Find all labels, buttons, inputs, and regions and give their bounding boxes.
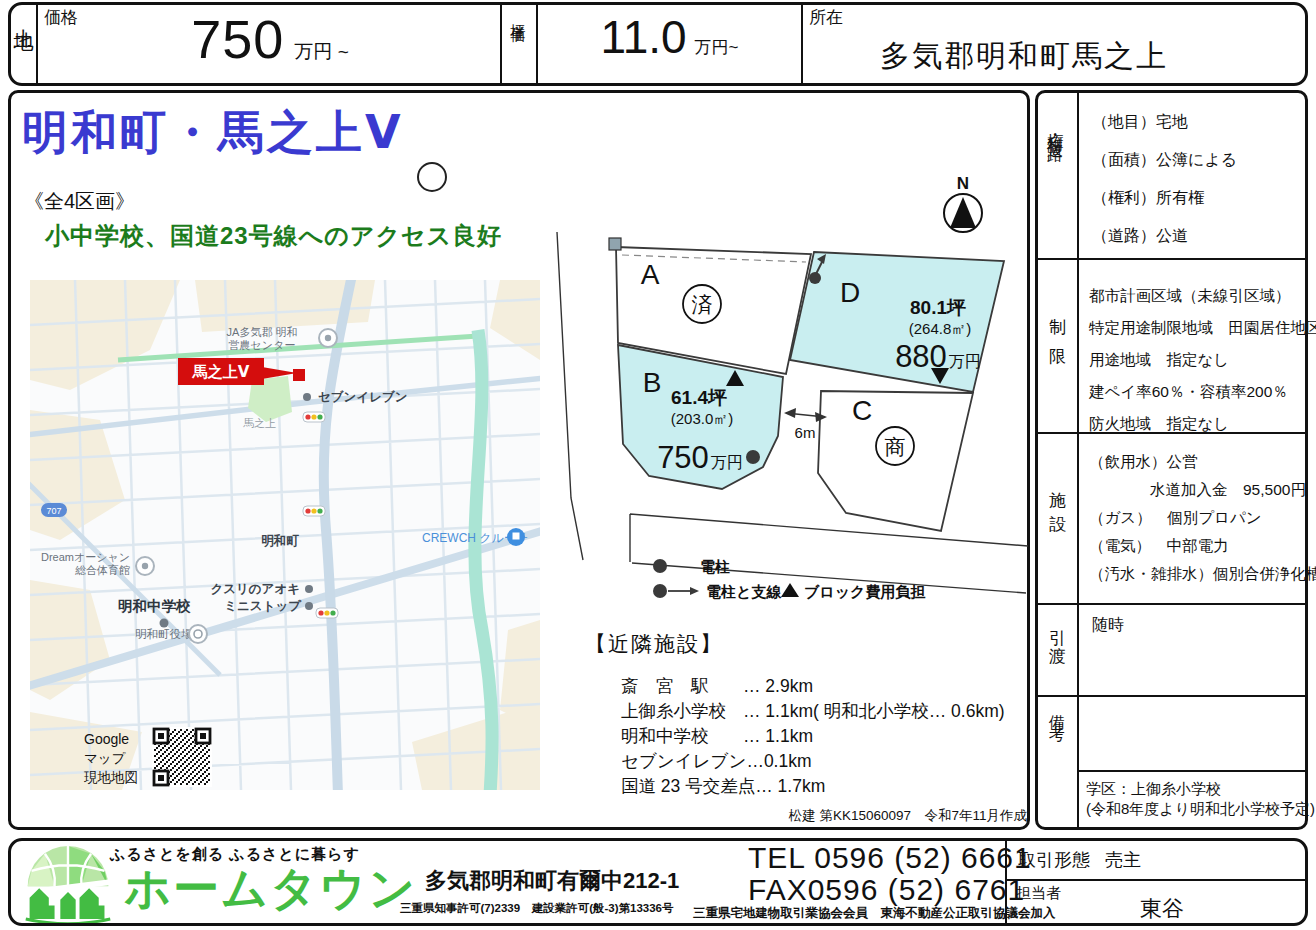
map-label-junior-high: 明和中学校 xyxy=(118,598,191,614)
north-compass: N xyxy=(944,174,982,232)
facility-row: 国道 23 号交差点… 1.7km xyxy=(621,774,1027,799)
footer-divider-v xyxy=(1005,841,1007,923)
map-label-seven-eleven: セブンイレブン xyxy=(318,390,408,404)
lot-C-status-text: 商 xyxy=(885,435,906,458)
map-label-ja-2: 営農センター xyxy=(229,339,296,351)
facility-name: 国道 23 号交差点 xyxy=(621,774,755,799)
lot-C-letter: C xyxy=(852,395,872,426)
tsubo-unit: 万円~ xyxy=(695,36,739,59)
handover-line: 随時 xyxy=(1092,615,1124,636)
google-note-line2: マップ xyxy=(84,749,138,768)
company-address: 多気郡明和町有爾中212-1 xyxy=(425,866,679,896)
restriction-line: 特定用途制限地域 田園居住地区 xyxy=(1089,318,1316,339)
lot-B-letter: B xyxy=(643,367,662,398)
lot-count-subtitle: 《全4区画》 xyxy=(24,188,135,215)
lot-A-status-text: 済 xyxy=(692,293,713,316)
deal-type-label: 取引形態 xyxy=(1018,848,1090,872)
price-value-row: 750 万円 ~ xyxy=(40,8,500,80)
school-note-line1: 学区：上御糸小学校 xyxy=(1086,780,1221,799)
header-divider-2 xyxy=(500,5,502,83)
traffic-signal-1 xyxy=(303,412,325,422)
traffic-signal-2 xyxy=(303,506,325,516)
utility-line: （飲用水）公営 xyxy=(1089,452,1198,473)
map-label-dream-1: Dreamオーシャン xyxy=(41,551,130,563)
plot-diagram: 6m N A B C D 済 商 61.4坪 (203.0㎡) 750万円 80… xyxy=(545,150,1030,625)
footer-divider-h xyxy=(1007,879,1305,881)
plot-bottom-road xyxy=(630,514,1028,593)
facility-distance: … 1.1km( 明和北小学校… 0.6km) xyxy=(743,699,1005,724)
traffic-signal-3 xyxy=(316,608,338,618)
utility-line: （ガス） 個別プロパン xyxy=(1089,508,1262,529)
plot-corner-marker xyxy=(609,238,621,250)
sidebar-label-utilities: 施設 xyxy=(1046,478,1069,526)
facilities-section: 【近隣施設】 斎 宮 駅… 2.9km 上御糸小学校… 1.1km( 明和北小学… xyxy=(585,630,1027,825)
utility-line: （電気） 中部電力 xyxy=(1089,536,1229,557)
deal-type-value: 売主 xyxy=(1105,848,1141,872)
header-divider-4 xyxy=(801,5,803,83)
facility-name: 斎 宮 駅 xyxy=(621,674,743,699)
facilities-title: 【近隣施設】 xyxy=(585,630,1027,658)
sidebar-label-rights: 権利・道路 xyxy=(1044,120,1065,136)
map-label-ministop: ミニストップ xyxy=(224,599,302,613)
page-title: 明和町・馬之上Ⅴ xyxy=(22,102,404,164)
membership-note: 三重県宅地建物取引業協会会員 東海不動産公正取引協議会加入 xyxy=(693,905,1056,922)
sidebar-label-remarks: 備考 xyxy=(1046,702,1067,724)
rights-line: （道路）公道 xyxy=(1092,226,1188,247)
sidebar-label-divider xyxy=(1077,93,1079,827)
map-label-town-hall: 明和町役場 xyxy=(135,628,193,640)
crewch-poi-icon xyxy=(507,528,525,546)
ministop-dot xyxy=(305,602,313,610)
rights-line: （地目）宅地 xyxy=(1092,112,1188,133)
facility-row: 明和中学校… 1.1km xyxy=(621,724,1027,749)
agent-name: 東谷 xyxy=(1140,894,1184,924)
fax-number: FAX0596 (52) 6761 xyxy=(748,873,1025,907)
sidebar-divider-4 xyxy=(1038,695,1305,697)
lot-D-letter: D xyxy=(840,277,860,308)
ja-poi-icon xyxy=(319,329,337,347)
price-unit: 万円 ~ xyxy=(294,39,348,65)
category-label: 土地 xyxy=(11,13,38,19)
lot-B-tsubo: 61.4坪 xyxy=(671,387,727,408)
route-707-number: 707 xyxy=(46,506,61,516)
sidebar-divider-5 xyxy=(1079,770,1305,772)
seven-eleven-dot xyxy=(303,393,311,401)
map-label-ja-1: JA多気郡 明和 xyxy=(227,326,298,338)
lot-C-status: 商 xyxy=(876,427,914,465)
plot-left-road xyxy=(557,232,583,560)
tsubo-value-row: 11.0 万円~ xyxy=(538,10,801,80)
map-site-label: 馬之上Ⅴ xyxy=(192,363,250,380)
restriction-line: 建ペイ率60％・容積率200％ xyxy=(1089,382,1288,403)
facility-row: 上御糸小学校… 1.1km( 明和北小学校… 0.6km) xyxy=(621,699,1027,724)
lot-D-area: (264.8㎡) xyxy=(909,320,972,337)
legend-pole-label: 電柱 xyxy=(700,558,730,575)
facility-distance: … 1.7km xyxy=(755,774,825,799)
lot-A-letter: A xyxy=(641,259,660,290)
facility-row: 斎 宮 駅… 2.9km xyxy=(621,674,1027,699)
facility-name: 上御糸小学校 xyxy=(621,699,743,724)
facility-distance: … 1.1km xyxy=(743,724,813,749)
qr-code xyxy=(152,727,212,787)
facility-name: セブンイレブン xyxy=(621,749,746,774)
sidebar-divider-3 xyxy=(1038,603,1305,605)
google-note-line3: 現地地図 xyxy=(84,768,138,787)
facility-distance: … 2.9km xyxy=(743,674,813,699)
sidebar-divider-1 xyxy=(1038,258,1305,260)
agent-label: 担当者 xyxy=(1016,884,1061,903)
utility-line: （汚水・雑排水）個別合併浄化槽 xyxy=(1089,564,1316,585)
tsubo-value: 11.0 xyxy=(600,10,686,64)
map-label-meiwa-cho: 明和町 xyxy=(261,533,299,548)
route-707-badge: 707 xyxy=(41,503,67,517)
map-label-kusuri-aoki: クスリのアオキ xyxy=(210,582,300,596)
company-license: 三重県知事許可(7)2339 建設業許可(般-3)第13336号 xyxy=(400,901,674,916)
license-note: 松建 第KK15060097 令和7年11月作成 xyxy=(585,807,1027,825)
town-hall-poi-icon xyxy=(189,625,207,643)
tel-number: TEL 0596 (52) 6661 xyxy=(748,841,1032,875)
utility-pole-B xyxy=(746,450,760,464)
rights-line: （権利）所有権 xyxy=(1092,188,1204,209)
company-name: ホームタウン xyxy=(124,858,417,920)
tsubo-label: 坪単価 xyxy=(508,12,527,18)
lot-B-area: (203.0㎡) xyxy=(671,410,734,427)
road-width-label: 6m xyxy=(795,424,816,441)
facilities-list: 斎 宮 駅… 2.9km 上御糸小学校… 1.1km( 明和北小学校… 0.6k… xyxy=(621,674,1027,799)
map-label-banojo: 馬之上 xyxy=(243,417,276,429)
kusuri-aoki-dot xyxy=(305,585,313,593)
lot-D-tsubo: 80.1坪 xyxy=(910,297,966,318)
compass-n: N xyxy=(957,174,969,193)
legend-guywire-label: 電柱と支線 xyxy=(706,583,782,600)
legend-block-label: ブロック費用負担 xyxy=(804,583,925,600)
map-label-dream-2: 総合体育館 xyxy=(75,564,130,576)
google-map-note: Google マップ 現地地図 xyxy=(84,730,138,787)
punch-hole-circle xyxy=(417,162,447,192)
rights-line: （面積）公簿による xyxy=(1092,150,1237,171)
sidebar-label-restrictions: 制限 xyxy=(1046,305,1069,366)
location-map: JA多気郡 明和 営農センター 馬之上Ⅴ セブンイレブン 馬之上 707 明和町… xyxy=(30,280,540,790)
facility-distance: …0.1km xyxy=(746,749,811,774)
google-note-line1: Google xyxy=(84,730,138,749)
location-label: 所在 xyxy=(809,6,843,29)
facility-name: 明和中学校 xyxy=(621,724,743,749)
catch-copy: 小中学校、国道23号線へのアクセス良好 xyxy=(45,220,502,252)
restriction-line: 用途地域 指定なし xyxy=(1089,350,1229,371)
location-value: 多気郡明和町馬之上 xyxy=(880,36,1168,77)
utility-line: 水道加入金 95,500円 xyxy=(1150,480,1306,501)
school-note-line2: (令和8年度より明和北小学校予定) xyxy=(1086,800,1315,819)
company-logo xyxy=(20,842,116,923)
lot-A-status: 済 xyxy=(683,285,721,323)
legend-triangle xyxy=(781,583,799,597)
restriction-line: 防火地域 指定なし xyxy=(1089,414,1229,435)
price-value: 750 xyxy=(191,8,284,70)
facility-row: セブンイレブン…0.1km xyxy=(621,749,1027,774)
restriction-line: 都市計画区域（未線引区域） xyxy=(1089,286,1291,307)
dream-poi-icon xyxy=(136,557,154,575)
sidebar-label-handover: 引渡 xyxy=(1046,617,1069,648)
junior-high-dot xyxy=(160,619,169,628)
plot-legend: 電柱 電柱と支線 ブロック費用負担 xyxy=(653,558,925,600)
